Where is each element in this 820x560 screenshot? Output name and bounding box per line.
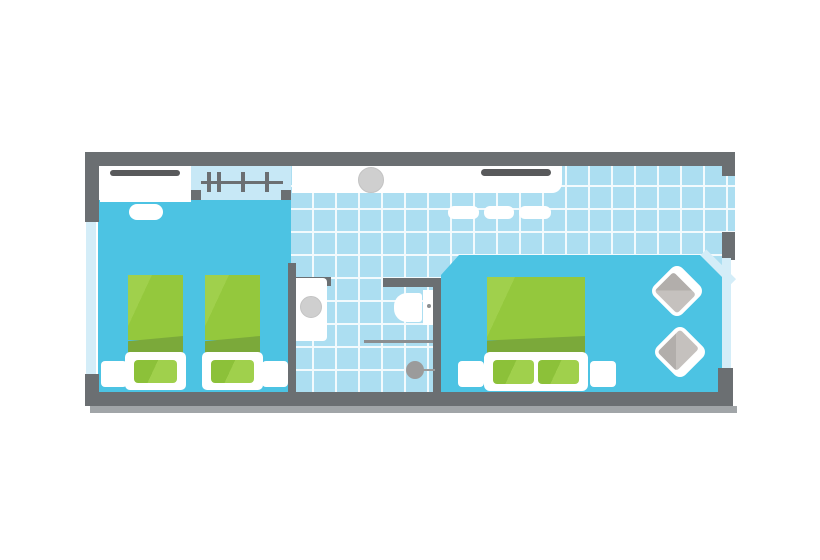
bathroom-door-jamb-right: [383, 278, 433, 287]
hanger-icon: [241, 172, 245, 192]
wall-shadow: [90, 406, 737, 413]
bed-blanket: [487, 277, 585, 340]
mat: [484, 206, 514, 219]
washbasin-bowl: [300, 296, 322, 318]
nightstand: [590, 361, 616, 387]
bed-pillow-right: [538, 360, 579, 384]
wall-top-right-block: [722, 152, 735, 176]
bathroom-wall-left: [288, 263, 296, 392]
hanger-icon: [265, 172, 269, 192]
closet-rail: [110, 170, 180, 176]
wardrobe-wall-stub-right: [281, 190, 291, 200]
nightstand: [101, 361, 127, 387]
bathroom-wall-right: [433, 278, 441, 392]
mat: [519, 206, 551, 219]
floor-plan: [0, 0, 820, 560]
sink: [358, 167, 384, 193]
shower-drain: [406, 361, 424, 379]
wall-left-bottom: [85, 374, 99, 406]
nightstand: [458, 361, 484, 387]
bed-pillow: [134, 360, 177, 383]
door-mat: [129, 204, 163, 220]
wall-left-top: [85, 152, 99, 222]
nightstand: [262, 361, 288, 387]
shower-hose: [423, 369, 435, 371]
towel-rail: [481, 169, 551, 176]
window-left: [86, 222, 96, 374]
toilet: [394, 293, 422, 322]
window-right: [722, 258, 731, 370]
hanger-icon: [217, 172, 221, 192]
closet: [100, 163, 191, 202]
bed-blanket: [128, 275, 183, 340]
bed-blanket: [205, 275, 260, 340]
hanger-icon: [207, 172, 211, 192]
wall-bottom: [85, 392, 733, 406]
toilet-flush-button: [427, 304, 431, 308]
entry-wall-stub: [722, 232, 735, 260]
mat: [448, 206, 479, 219]
wardrobe-wall-stub-left: [191, 190, 201, 200]
bed-pillow-left: [493, 360, 534, 384]
wall-top: [85, 152, 735, 166]
shower-screen: [364, 340, 433, 343]
bed-pillow: [211, 360, 254, 383]
